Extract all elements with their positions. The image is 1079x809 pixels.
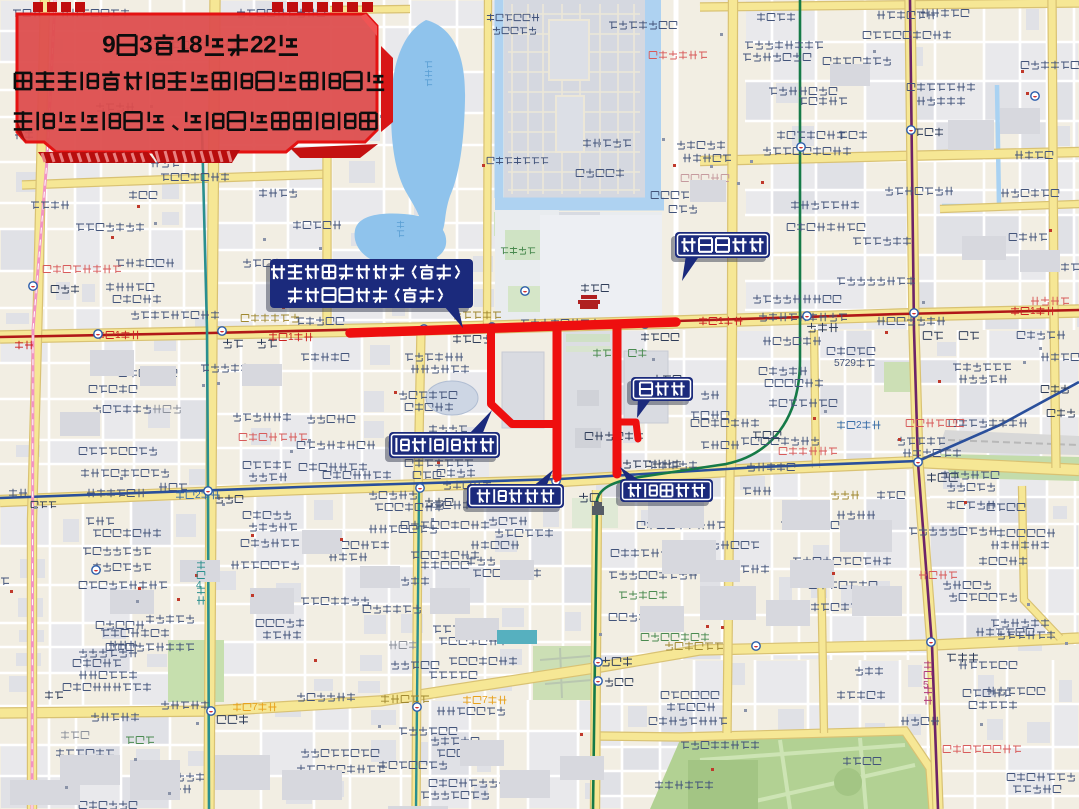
svg-text:5: 5 <box>923 680 929 691</box>
svg-text:9: 9 <box>850 358 856 369</box>
svg-text:2: 2 <box>263 32 277 59</box>
svg-text:3: 3 <box>139 32 153 59</box>
svg-text:1: 1 <box>115 330 121 341</box>
svg-text:8: 8 <box>189 32 203 59</box>
svg-text:1: 1 <box>288 332 294 343</box>
svg-text:1: 1 <box>718 316 724 327</box>
svg-text:4: 4 <box>196 580 202 591</box>
svg-text:2: 2 <box>195 490 201 501</box>
svg-text:7: 7 <box>482 695 488 706</box>
svg-text:7: 7 <box>252 702 258 713</box>
svg-text:1: 1 <box>176 32 190 59</box>
svg-text:2: 2 <box>250 32 264 59</box>
svg-text:9: 9 <box>102 32 116 59</box>
svg-text:2: 2 <box>856 420 862 431</box>
svg-text:1: 1 <box>1030 306 1036 317</box>
